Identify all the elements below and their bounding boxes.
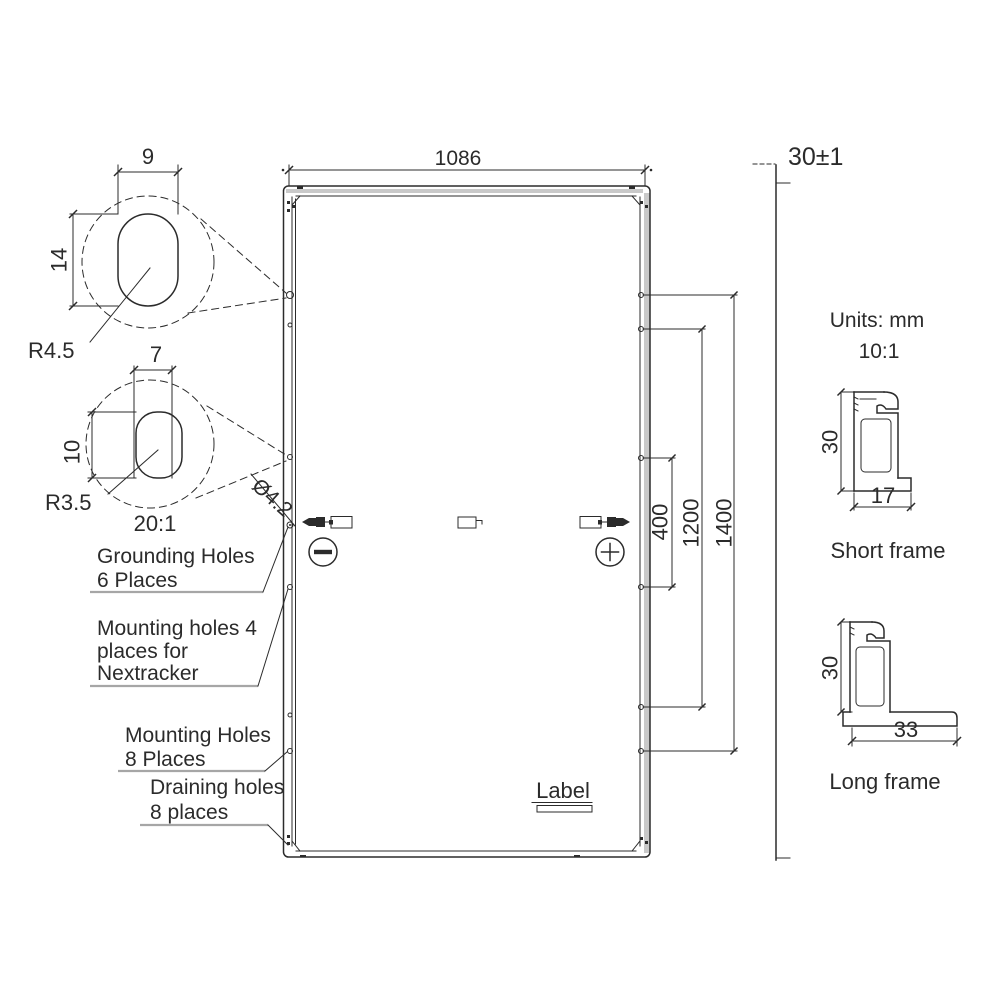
drain-hole-dot: [640, 837, 643, 840]
detail-b-slot: [136, 412, 182, 478]
cable-plug: [616, 518, 623, 526]
drawing-notes: Units: mm 10:1: [830, 309, 925, 363]
callout-draining-holes: Draining holes 8 places: [140, 776, 288, 845]
detail-view-a: 9 14 R4.5: [28, 144, 286, 363]
callout-text: Mounting holes 4: [97, 617, 257, 640]
callout-hole-diameter: Ø4.2: [247, 474, 296, 526]
callout-text: 8 places: [150, 801, 228, 824]
detail-a-height-text: 14: [47, 248, 72, 272]
edge-drain-mark: [574, 855, 580, 858]
junction-box-negative: [302, 517, 352, 567]
dim-1086: 1086: [282, 147, 653, 185]
detail-a-slot: [118, 214, 178, 306]
profile-cavity: [856, 647, 884, 706]
callout-text: Nextracker: [97, 662, 199, 685]
center-box: [458, 517, 476, 528]
panel-rear-view: [284, 186, 651, 857]
corner-chamfer-tr: [632, 196, 640, 205]
positive-terminal-icon: [596, 538, 624, 566]
long-frame-height-text: 30: [818, 656, 843, 680]
callout-mounting-holes: Mounting Holes 8 Places: [118, 724, 287, 771]
connector-housing: [580, 517, 601, 529]
callout-text: 8 Places: [125, 748, 206, 771]
profile-hook: [877, 392, 898, 478]
long-frame-profile: 30 33 Long frame: [818, 619, 961, 794]
dim-30pm1-text: 30±1: [788, 143, 843, 171]
detail-b-scale-text: 20:1: [134, 511, 177, 536]
short-frame-label: Short frame: [831, 538, 946, 563]
short-frame-profile: 30 17 Short frame: [818, 389, 946, 563]
dim-1086-text: 1086: [435, 147, 482, 170]
detail-a-radius-text: R4.5: [28, 338, 74, 363]
panel-outline: [284, 186, 651, 857]
edge-drain-mark: [297, 187, 303, 190]
negative-terminal-icon: [309, 538, 337, 566]
mounting-hole: [288, 713, 292, 717]
units-note: Units: mm: [830, 309, 925, 332]
cable-connector: [316, 517, 325, 527]
frame-holes-right: [297, 187, 648, 858]
junction-box-positive: [580, 517, 630, 567]
scale-note: 10:1: [859, 340, 900, 363]
frame-holes-left: [287, 201, 296, 845]
label-sticker: Label: [532, 778, 592, 812]
frame-top-band: [286, 189, 643, 193]
edge-drain-mark: [300, 855, 306, 858]
profile-cavity: [861, 419, 891, 472]
hole-dia-text: Ø4.2: [247, 474, 296, 522]
callout-nextracker-holes: Mounting holes 4 places for Nextracker: [90, 589, 288, 686]
dim-right-stack: 400 1200 1400: [643, 292, 737, 754]
label-text: Label: [536, 778, 590, 803]
drain-hole-dot: [292, 205, 295, 208]
connector-latch: [329, 520, 333, 525]
detail-b-height-text: 10: [60, 440, 85, 464]
drain-hole-dot: [645, 841, 648, 844]
detail-a-bubble: [82, 196, 214, 328]
drawing-canvas: Label 1086 400 1200 1400: [0, 0, 1000, 1000]
callout-text: Grounding Holes: [97, 545, 255, 568]
mounting-hole: [288, 323, 292, 327]
detail-b-bubble: [86, 380, 214, 508]
junction-box-center: [458, 517, 482, 528]
leader-line: [268, 825, 288, 845]
dim-1400-text: 1400: [712, 499, 737, 548]
cable-plug-tip: [623, 518, 630, 526]
solar-panel-technical-drawing: Label 1086 400 1200 1400: [0, 0, 1000, 1000]
dim-1200-text: 1200: [679, 499, 704, 548]
connector-housing: [331, 517, 352, 529]
profile-hook: [867, 622, 890, 712]
short-frame-height-text: 30: [818, 430, 843, 454]
drain-hole-dot: [645, 205, 648, 208]
edge-drain-mark: [629, 187, 635, 190]
dim-thickness-30pm1: 30±1: [753, 143, 843, 860]
cable-plug: [309, 518, 316, 526]
corner-chamfer-br: [632, 841, 640, 851]
callout-text: Mounting Holes: [125, 724, 271, 747]
cable-plug-tip: [302, 518, 309, 526]
drain-hole-dot: [287, 209, 290, 212]
detail-b-radius-text: R3.5: [45, 490, 91, 515]
dim-400-text: 400: [648, 504, 673, 541]
short-frame-width-text: 17: [871, 483, 895, 508]
callout-text: places for: [97, 640, 188, 663]
label-rect: [537, 806, 592, 813]
long-frame-label: Long frame: [829, 769, 940, 794]
callout-text: Draining holes: [150, 776, 284, 799]
callout-grounding-holes: Grounding Holes 6 Places: [90, 527, 288, 592]
detail-view-b: 7 10 R3.5 20:1: [45, 342, 286, 536]
drain-hole-dot: [287, 835, 290, 838]
detail-a-width-text: 9: [142, 144, 154, 169]
center-box-tab: [476, 521, 482, 525]
callout-text: 6 Places: [97, 569, 178, 592]
grounding-hole-center: [289, 524, 291, 526]
detail-b-width-text: 7: [150, 342, 162, 367]
cable-connector: [607, 517, 616, 527]
detail-b-leader: [207, 406, 286, 455]
drain-hole-dot: [287, 201, 290, 204]
detail-a-leader: [188, 298, 286, 313]
long-frame-width-text: 33: [894, 717, 918, 742]
drain-hole-dot: [640, 201, 643, 204]
